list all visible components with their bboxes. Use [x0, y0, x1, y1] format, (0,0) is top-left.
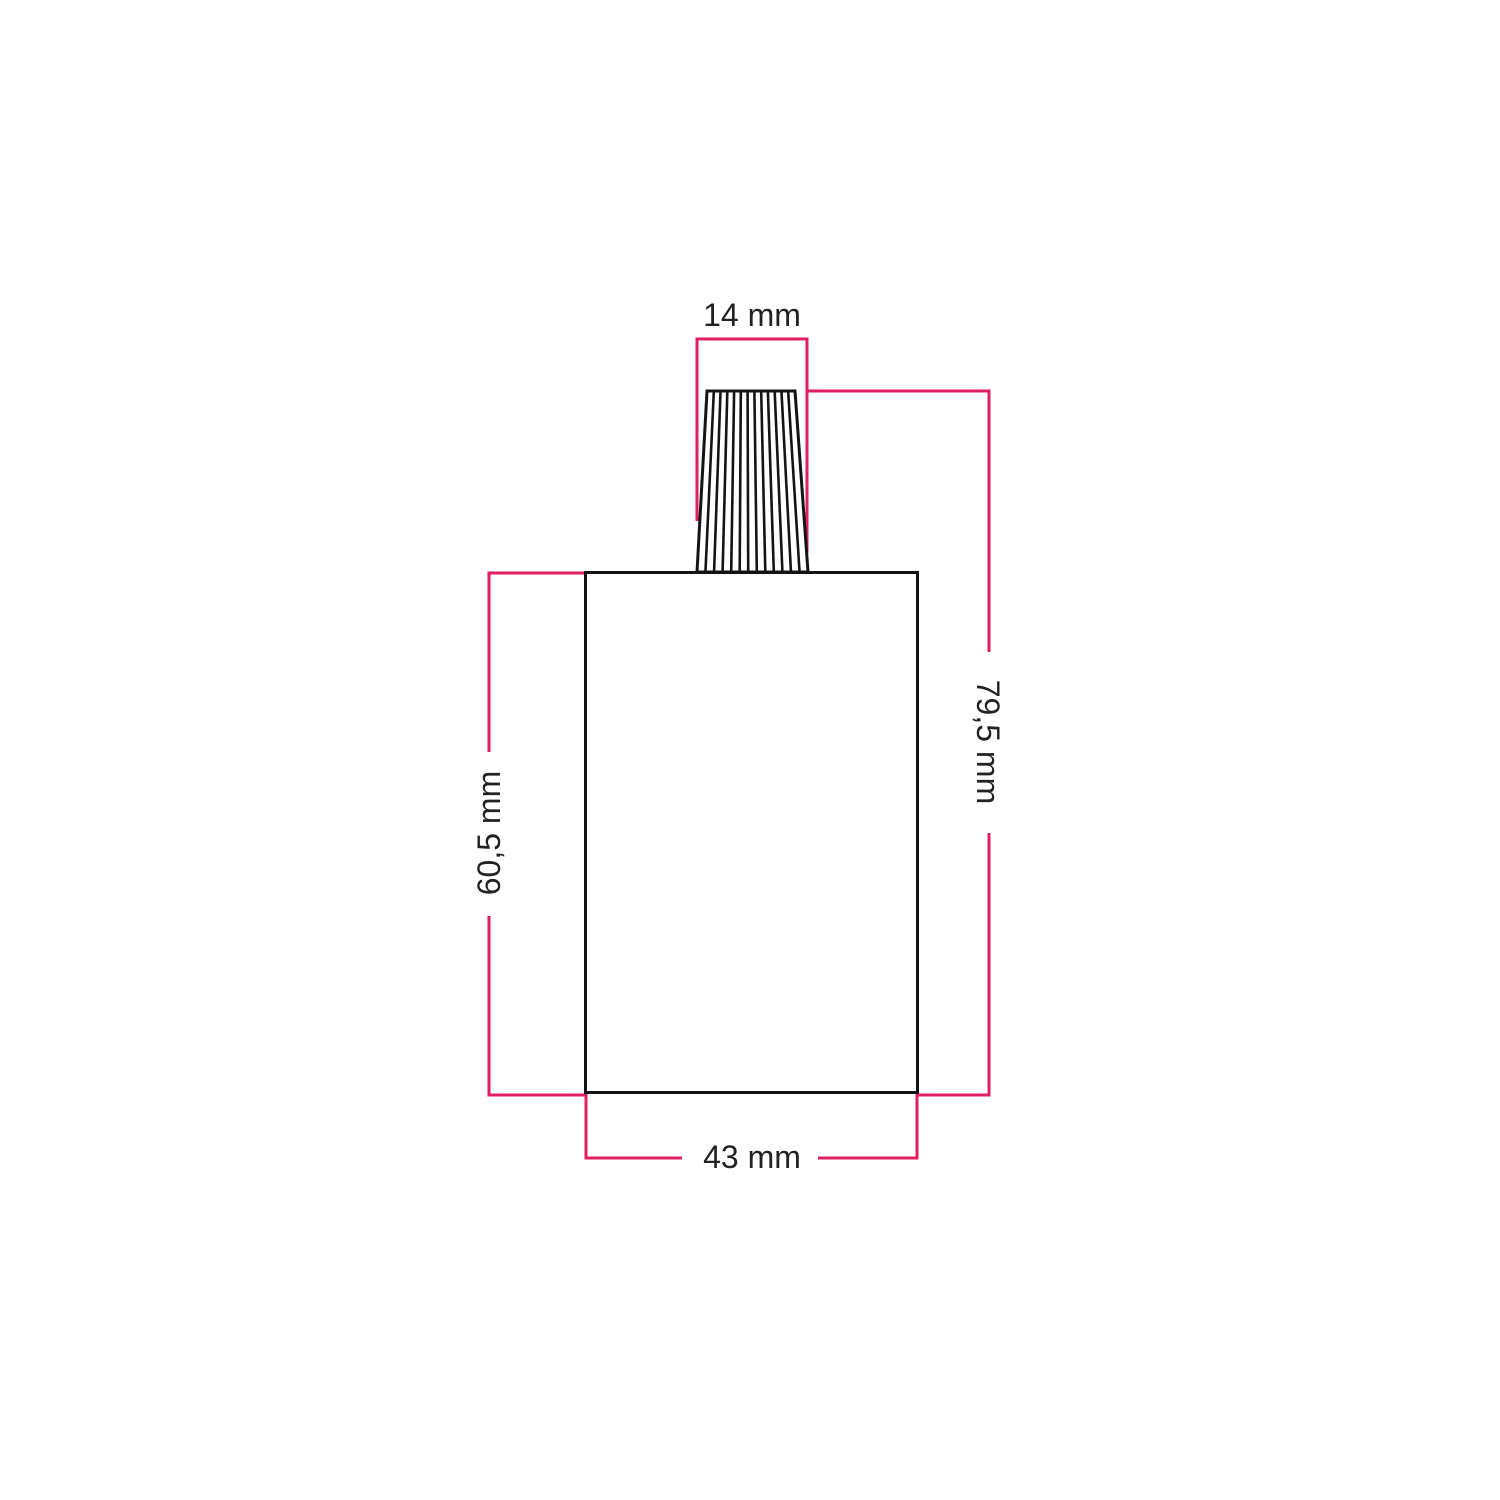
dim-body-height-line-bottom: [489, 916, 585, 1095]
dim-body-height-label: 60,5 mm: [471, 771, 507, 895]
socket-body-outline: [586, 573, 918, 1093]
dim-total-height-line-top: [807, 391, 989, 652]
dim-top-width-label: 14 mm: [703, 297, 801, 333]
technical-drawing-canvas: 14 mm 79,5 mm 60,5 mm 43 mm: [0, 0, 1500, 1500]
dim-body-height: 60,5 mm: [471, 573, 585, 1095]
dim-total-height: 79,5 mm: [807, 391, 1006, 1095]
rib-line: [740, 392, 741, 571]
dim-body-width-line-left: [586, 1092, 682, 1158]
dim-body-width-label: 43 mm: [703, 1139, 801, 1175]
dimension-diagram: 14 mm 79,5 mm 60,5 mm 43 mm: [0, 0, 1500, 1500]
rib-line: [748, 392, 749, 571]
dim-body-height-line-top: [489, 573, 585, 752]
dim-total-height-label: 79,5 mm: [970, 680, 1006, 804]
lamp-holder-drawing: [586, 391, 918, 1093]
dim-total-height-line-bottom: [917, 833, 989, 1095]
dim-body-width: 43 mm: [586, 1092, 917, 1175]
dim-body-width-line-right: [818, 1092, 917, 1158]
